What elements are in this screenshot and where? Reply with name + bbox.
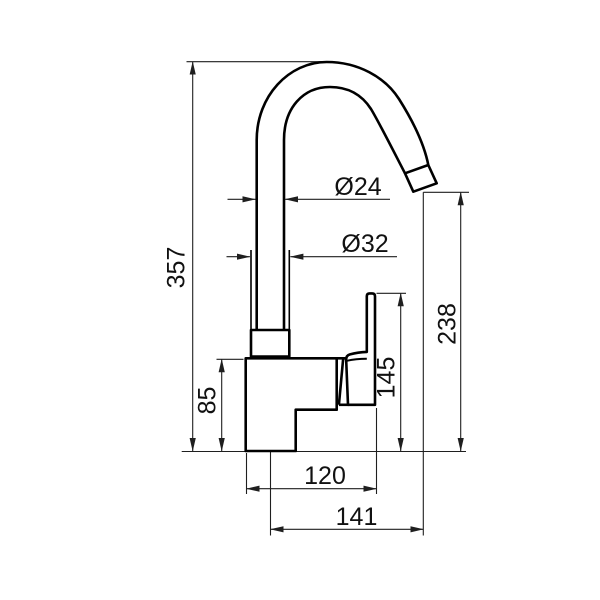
mixer-body-outline <box>246 358 337 451</box>
dimension-label-dia32: Ø32 <box>341 230 388 258</box>
technical-drawing-page: 357 85 145 238 Ø24 Ø32 120 141 <box>0 0 600 600</box>
handle-base-top-edge <box>347 359 367 361</box>
dimension-label-357: 357 <box>163 247 191 289</box>
dimension-label-85: 85 <box>194 387 222 415</box>
dimension-label-145: 145 <box>373 357 401 399</box>
faucet-dimension-drawing: 357 85 145 238 Ø24 Ø32 120 141 <box>0 0 600 600</box>
escutcheon-base-ring <box>251 330 289 357</box>
dimension-label-238: 238 <box>434 303 462 345</box>
cartridge-diagonal-line <box>339 358 343 404</box>
lever-handle-outline <box>346 293 375 404</box>
spout-aerator-tip <box>405 165 437 192</box>
spout-inner-curve <box>284 87 405 331</box>
dimension-label-120: 120 <box>304 462 346 490</box>
dimension-label-dia24: Ø24 <box>334 173 381 201</box>
dimension-label-141: 141 <box>336 503 378 531</box>
dimension-labels-group: 357 85 145 238 Ø24 Ø32 120 141 <box>163 173 462 531</box>
